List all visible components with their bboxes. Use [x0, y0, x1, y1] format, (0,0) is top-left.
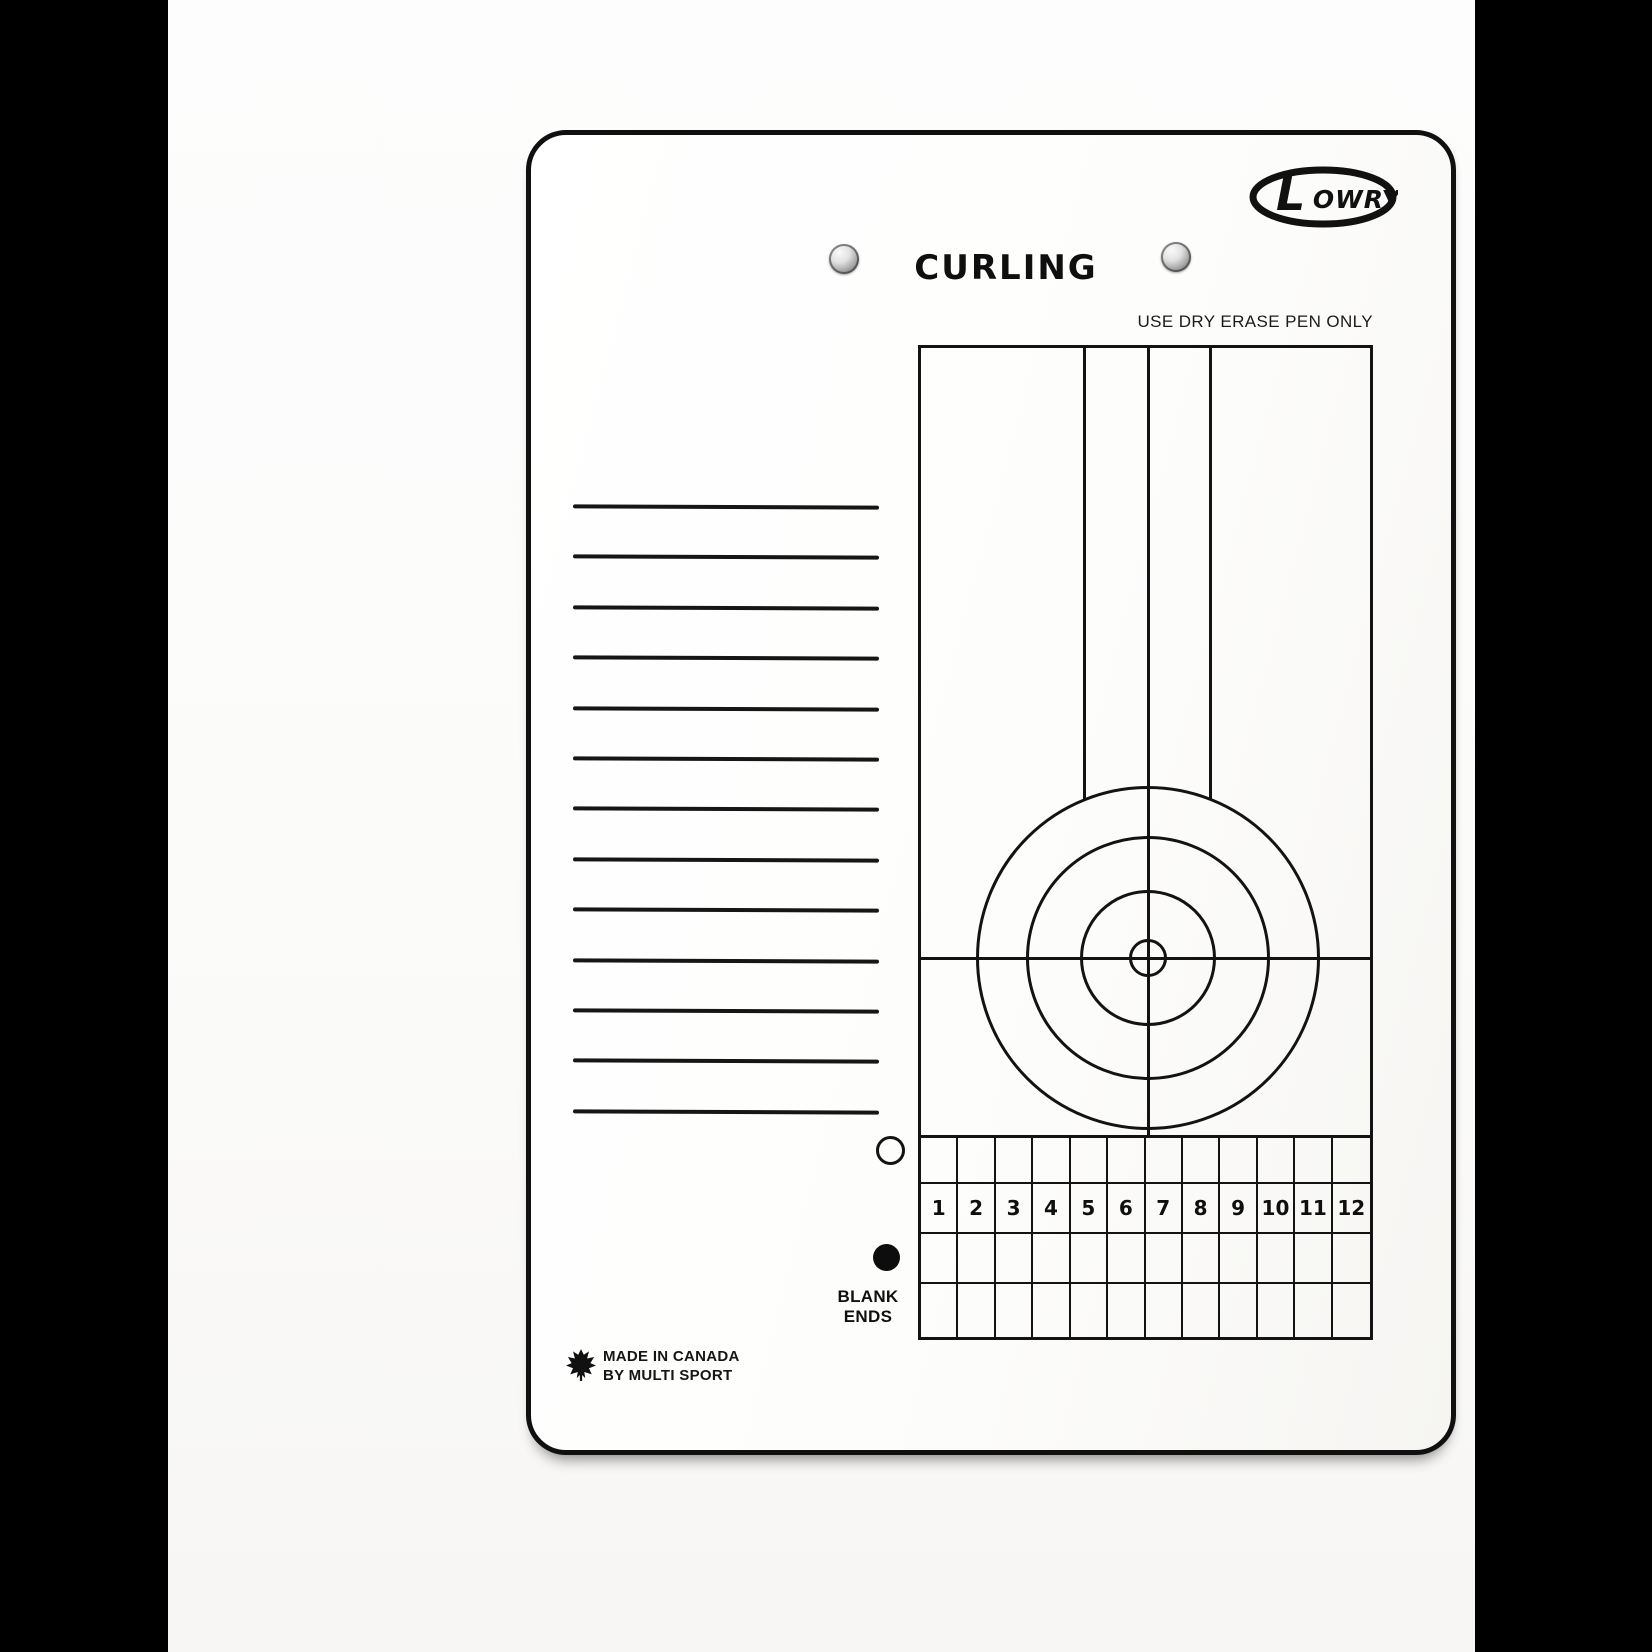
logo-rest: OWRY — [1313, 185, 1398, 214]
score-cell — [1033, 1284, 1070, 1337]
score-cell — [996, 1138, 1033, 1184]
score-cell — [1295, 1138, 1332, 1184]
note-line — [573, 1109, 879, 1114]
footer-line1: MADE IN CANADA — [603, 1347, 740, 1366]
footer-text: MADE IN CANADA BY MULTI SPORT — [603, 1347, 740, 1385]
score-cell — [1071, 1234, 1108, 1284]
logo-initial: L — [1276, 167, 1306, 221]
score-cell — [958, 1234, 995, 1284]
end-number-cell: 8 — [1183, 1184, 1220, 1234]
note-line — [573, 555, 879, 560]
score-cell — [1108, 1284, 1145, 1337]
end-number-cell: 5 — [1071, 1184, 1108, 1234]
blank-end-open-circle-icon — [876, 1136, 905, 1165]
score-cell — [1220, 1284, 1257, 1337]
note-lines-area — [573, 505, 879, 1125]
blank-ends-label-line2: ENDS — [808, 1307, 928, 1327]
score-cell — [1108, 1138, 1145, 1184]
photo-paper-background: L OWRY CURLING USE DRY ERASE PEN ONLY 12… — [168, 0, 1475, 1652]
score-cell — [1146, 1284, 1183, 1337]
score-cell — [1183, 1284, 1220, 1337]
score-cell — [1071, 1284, 1108, 1337]
end-number-cell: 7 — [1146, 1184, 1183, 1234]
end-number-cell: 9 — [1220, 1184, 1257, 1234]
score-cell — [1333, 1234, 1370, 1284]
note-line — [573, 958, 879, 963]
svg-text:L OWRY: L OWRY — [1276, 167, 1398, 221]
score-cell — [996, 1284, 1033, 1337]
score-cell — [1258, 1138, 1295, 1184]
end-number-cell: 1 — [921, 1184, 958, 1234]
sheet-guide-line-right — [1209, 348, 1212, 799]
score-cell — [1033, 1138, 1070, 1184]
sheet-guide-line-left — [1083, 348, 1086, 799]
end-number-cell: 4 — [1033, 1184, 1070, 1234]
note-line — [573, 504, 879, 509]
score-cell — [1295, 1284, 1332, 1337]
note-line — [573, 807, 879, 812]
score-grid: 123456789101112 — [921, 1135, 1370, 1337]
score-cell — [1333, 1284, 1370, 1337]
curling-clipboard-board: L OWRY CURLING USE DRY ERASE PEN ONLY 12… — [526, 130, 1456, 1455]
score-cell — [1033, 1234, 1070, 1284]
board-title: CURLING — [881, 247, 1131, 289]
blank-ends-label-line1: BLANK — [808, 1287, 928, 1307]
score-cell — [958, 1138, 995, 1184]
score-cell — [1333, 1138, 1370, 1184]
end-number-cell: 11 — [1295, 1184, 1332, 1234]
score-cell — [1258, 1284, 1295, 1337]
snap-rivet-left-icon — [829, 244, 859, 274]
score-cell — [921, 1138, 958, 1184]
score-cell — [921, 1234, 958, 1284]
end-number-cell: 10 — [1258, 1184, 1295, 1234]
note-line — [573, 908, 879, 913]
dry-erase-instruction: USE DRY ERASE PEN ONLY — [1031, 311, 1373, 333]
end-number-cell: 3 — [996, 1184, 1033, 1234]
tee-line — [921, 957, 1370, 960]
score-cell — [1183, 1138, 1220, 1184]
note-line — [573, 1059, 879, 1064]
note-line — [573, 605, 879, 610]
end-number-cell: 6 — [1108, 1184, 1145, 1234]
note-line — [573, 1008, 879, 1013]
score-cell — [1071, 1138, 1108, 1184]
snap-rivet-right-icon — [1161, 242, 1191, 272]
blank-ends-label: BLANK ENDS — [808, 1287, 928, 1327]
note-line — [573, 756, 879, 761]
score-cell — [1220, 1138, 1257, 1184]
score-cell — [1108, 1234, 1145, 1284]
score-cell — [1146, 1138, 1183, 1184]
score-cell — [1220, 1234, 1257, 1284]
note-line — [573, 857, 879, 862]
made-in-canada-footer: MADE IN CANADA BY MULTI SPORT — [566, 1347, 740, 1385]
score-cell — [1295, 1234, 1332, 1284]
score-cell — [996, 1234, 1033, 1284]
lowry-logo-ellipse-icon: L OWRY — [1248, 163, 1398, 229]
curling-sheet-diagram: 123456789101112 — [918, 345, 1373, 1340]
note-line — [573, 656, 879, 661]
score-cell — [1258, 1234, 1295, 1284]
blank-end-filled-circle-icon — [873, 1244, 900, 1271]
end-number-cell: 2 — [958, 1184, 995, 1234]
score-cell — [1183, 1234, 1220, 1284]
note-line — [573, 706, 879, 711]
score-cell — [1146, 1234, 1183, 1284]
end-number-cell: 12 — [1333, 1184, 1370, 1234]
maple-leaf-icon — [566, 1349, 596, 1381]
footer-line2: BY MULTI SPORT — [603, 1366, 740, 1385]
lowry-logo: L OWRY — [1248, 163, 1398, 229]
score-cell — [958, 1284, 995, 1337]
